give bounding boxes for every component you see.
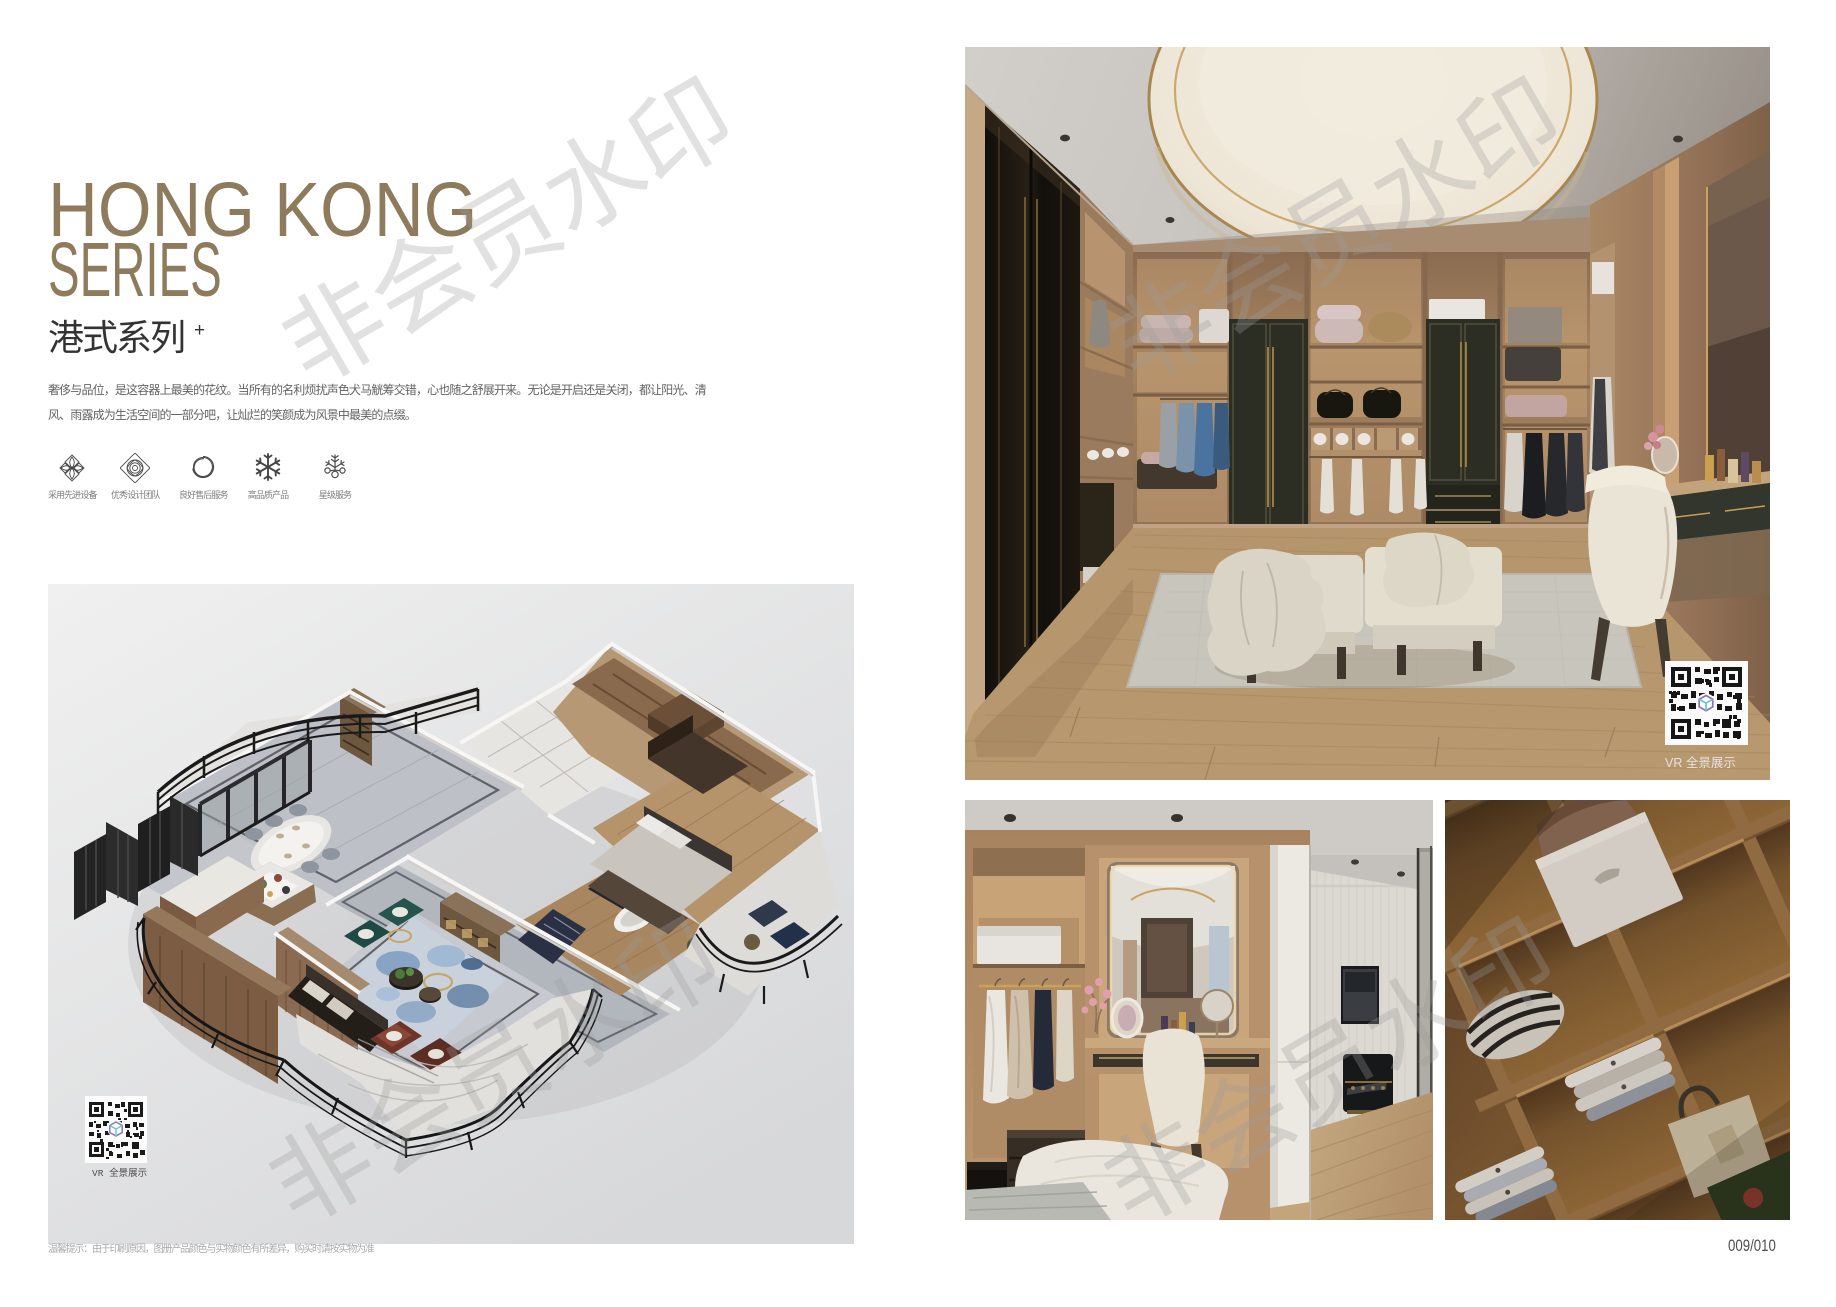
- svg-text:VR 全景展示: VR 全景展示: [1665, 755, 1736, 770]
- svg-text:VR 全景展示: VR 全景展示: [92, 1167, 147, 1179]
